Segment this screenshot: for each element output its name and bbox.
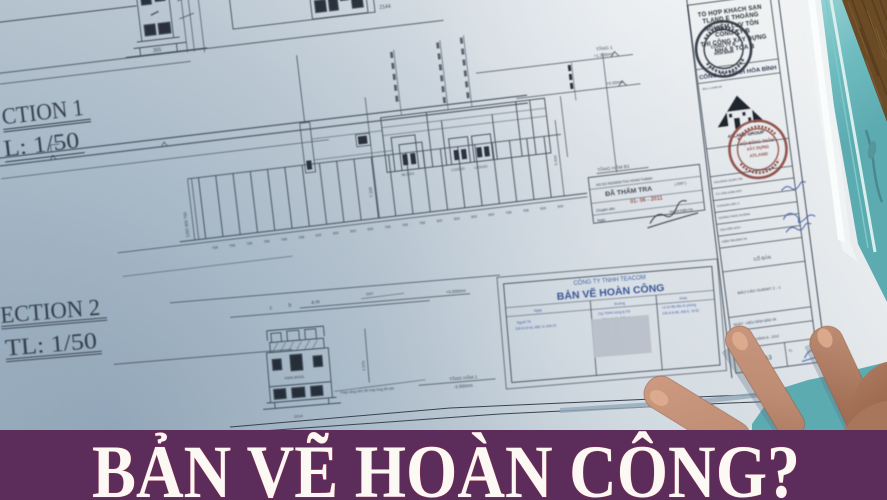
svg-text:900: 900 xyxy=(333,231,339,236)
svg-text:900: 900 xyxy=(367,227,373,232)
svg-text:768: 768 xyxy=(212,245,218,250)
svg-text:768: 768 xyxy=(384,225,390,230)
svg-text:900: 900 xyxy=(488,212,494,217)
svg-text:768: 768 xyxy=(419,221,425,226)
svg-text:900: 900 xyxy=(315,233,321,238)
svg-text:768: 768 xyxy=(281,237,287,242)
svg-text:768: 768 xyxy=(229,243,235,248)
svg-text:900: 900 xyxy=(350,229,356,234)
svg-text:900: 900 xyxy=(454,217,460,222)
svg-text:788: 788 xyxy=(298,235,304,240)
svg-text:768: 768 xyxy=(505,210,511,215)
svg-text:768: 768 xyxy=(523,208,529,213)
svg-text:2014: 2014 xyxy=(294,413,304,419)
svg-text:TL: TL xyxy=(788,349,793,353)
svg-text:Ngày: Ngày xyxy=(534,308,543,313)
svg-text:BẢN VẼ HOÀN CÔNG?: BẢN VẼ HOÀN CÔNG? xyxy=(92,431,800,500)
svg-text:Khác: Khác xyxy=(679,296,687,301)
svg-text:900: 900 xyxy=(557,204,563,209)
svg-text:355: 355 xyxy=(153,47,162,54)
svg-text:900: 900 xyxy=(540,206,546,211)
svg-text:768: 768 xyxy=(402,223,408,228)
svg-text:768: 768 xyxy=(263,239,269,244)
svg-text:768: 768 xyxy=(246,241,252,246)
svg-text:900: 900 xyxy=(436,219,442,224)
svg-text:a m: a m xyxy=(311,299,320,306)
svg-text:2.570: 2.570 xyxy=(360,360,366,371)
svg-text:900: 900 xyxy=(471,215,477,220)
svg-text:2007: 2007 xyxy=(366,292,374,297)
